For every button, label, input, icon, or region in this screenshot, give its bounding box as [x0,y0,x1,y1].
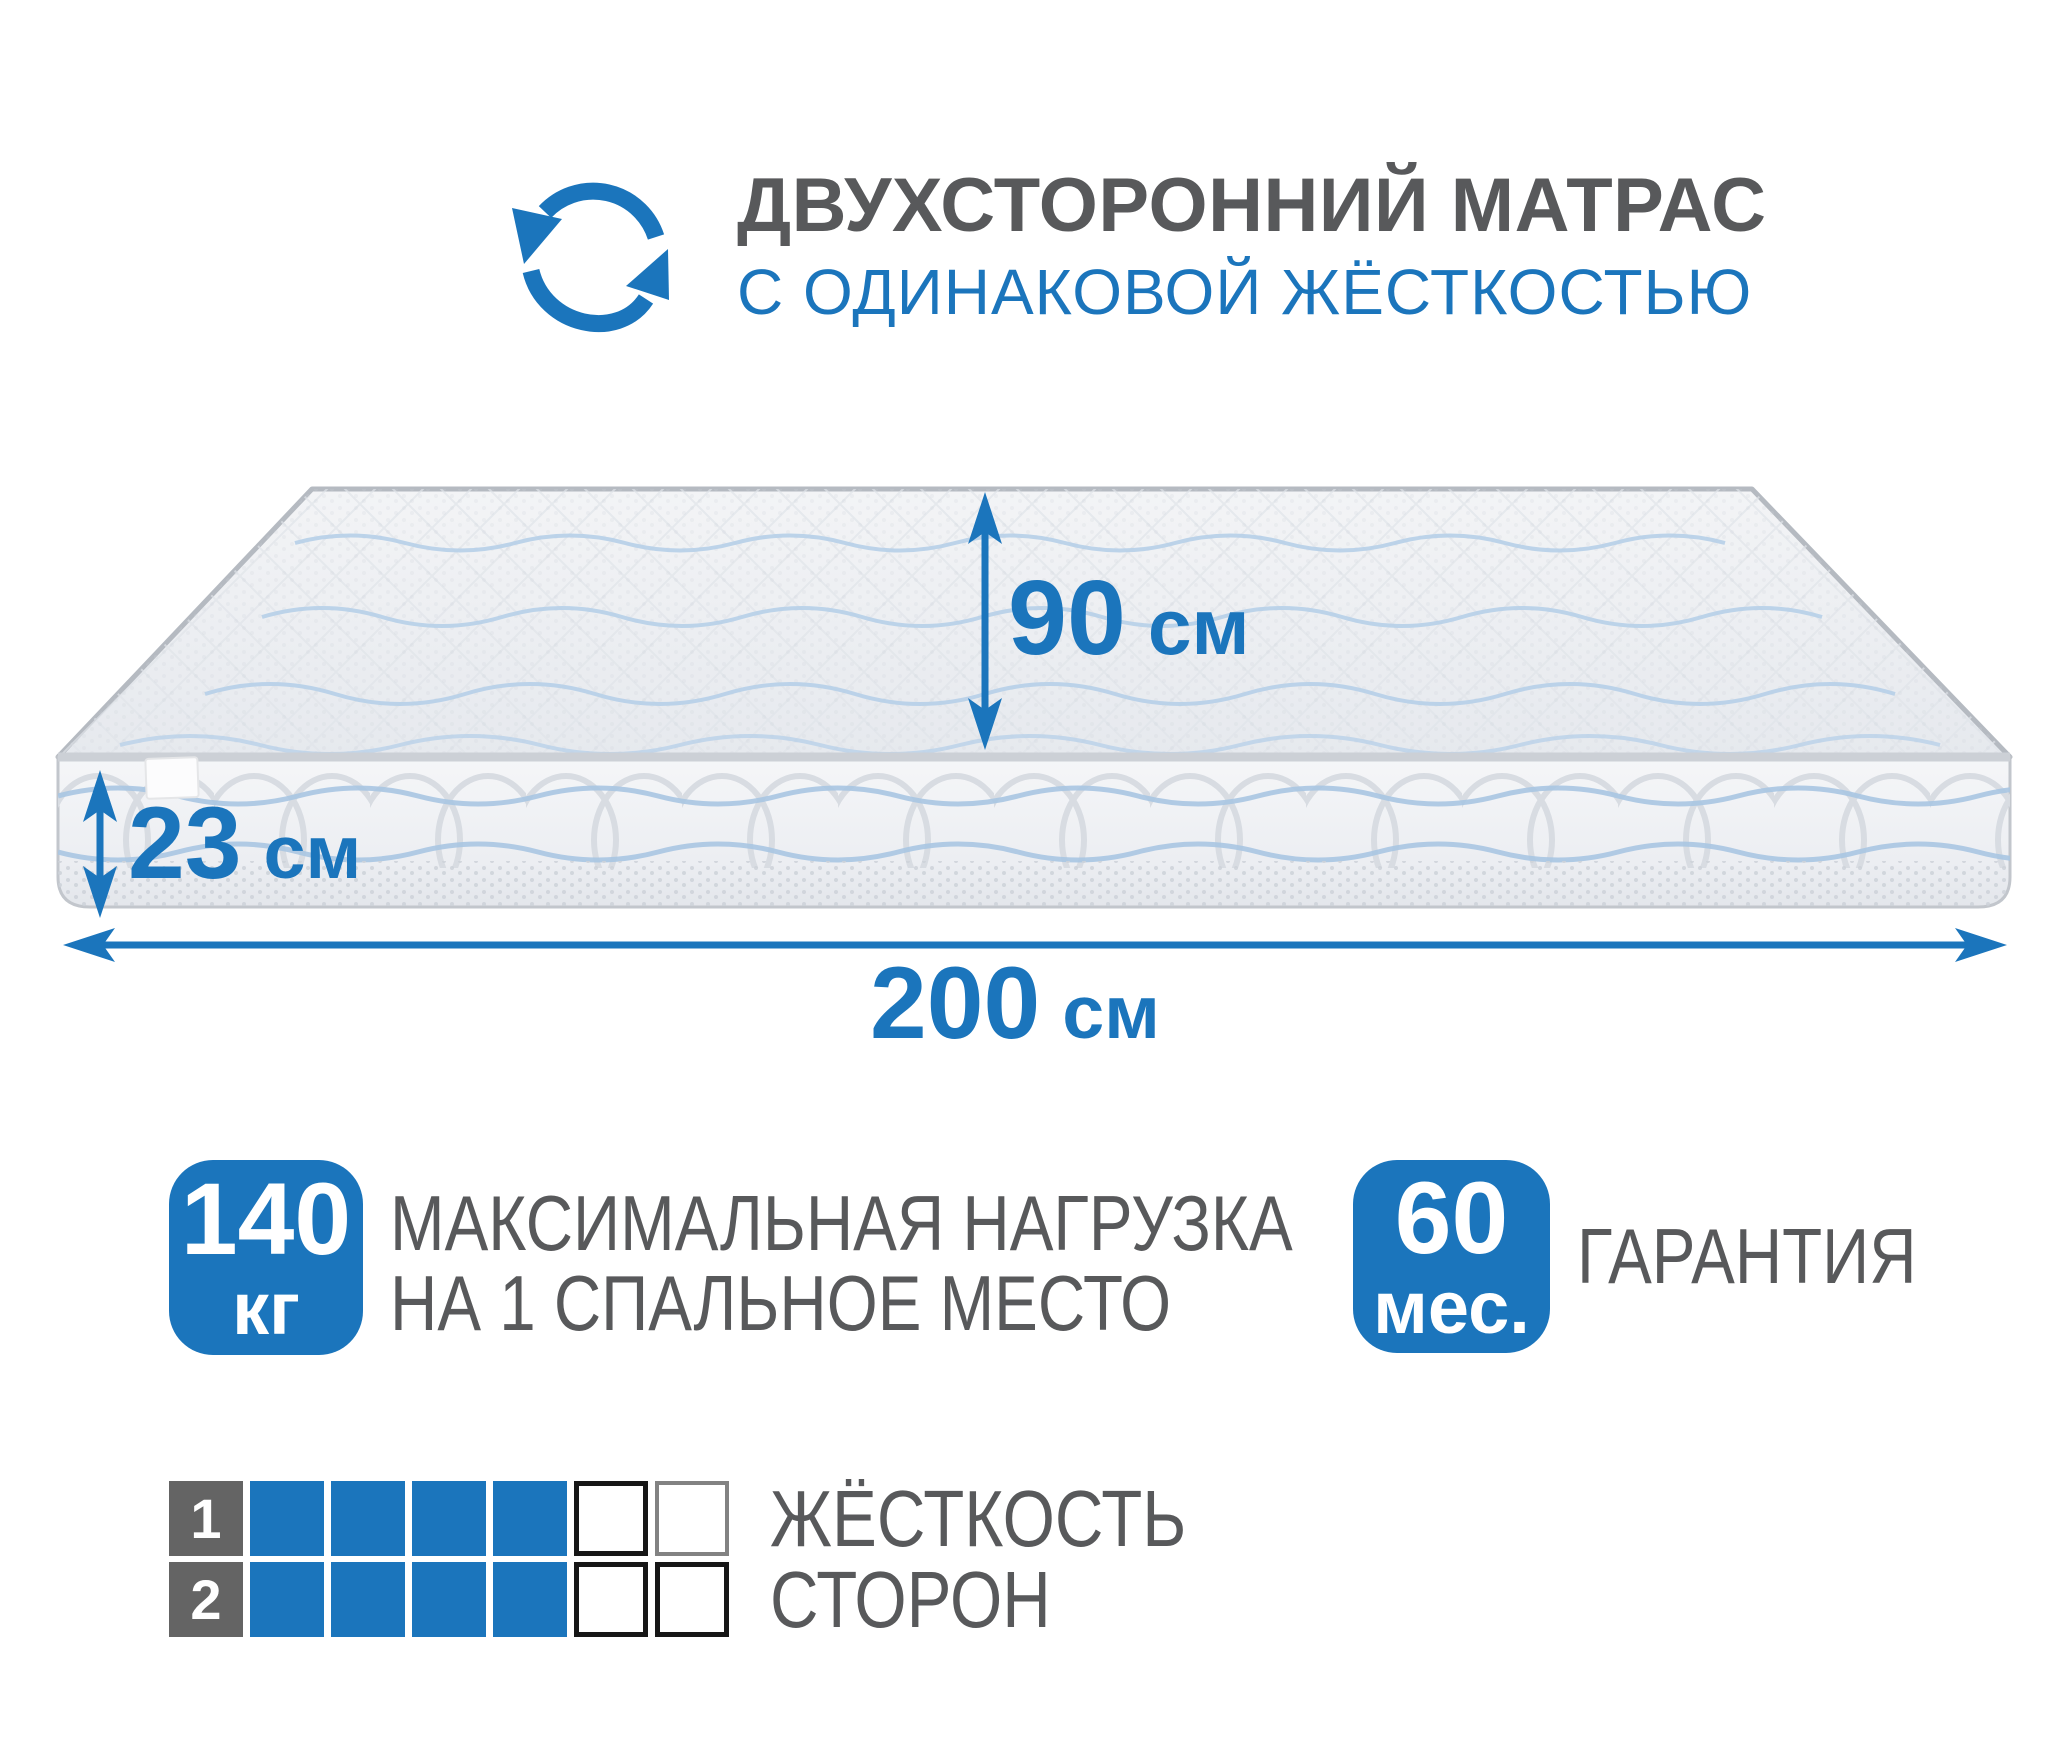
firmness-cell-empty [574,1481,648,1556]
max-load-label-line2: НА 1 СПАЛЬНОЕ МЕСТО [390,1263,1293,1343]
mattress-infographic: ДВУХСТОРОННИЙ МАТРАС С ОДИНАКОВОЙ ЖЁСТКО… [0,0,2048,1757]
dimension-thickness-value: 23 [128,786,241,900]
max-load-label: МАКСИМАЛЬНАЯ НАГРУЗКА НА 1 СПАЛЬНОЕ МЕСТ… [390,1183,1293,1343]
firmness-cell-empty [655,1481,729,1556]
firmness-cell-filled [493,1562,567,1637]
firmness-label-line1: ЖЁСТКОСТЬ [770,1481,1186,1556]
firmness-cell-filled [493,1481,567,1556]
max-load-value: 140 [181,1171,351,1268]
firmness-row-side2: 2 [169,1562,729,1637]
dimension-thickness-label: 23см [128,792,361,894]
page-subtitle: С ОДИНАКОВОЙ ЖЁСТКОСТЬЮ [737,260,1752,324]
firmness-cell-filled [250,1481,324,1556]
max-load-label-line1: МАКСИМАЛЬНАЯ НАГРУЗКА [390,1183,1293,1263]
dimension-length-unit: см [1062,970,1160,1054]
firmness-row-number: 1 [169,1481,243,1556]
firmness-cell-empty [655,1562,729,1637]
dimension-height-unit: см [1148,583,1250,671]
firmness-cell-filled [250,1562,324,1637]
dimension-length-value: 200 [870,946,1040,1060]
dimension-length-label: 200см [615,952,1415,1054]
firmness-cell-filled [412,1562,486,1637]
warranty-badge: 60 мес. [1353,1160,1550,1353]
warranty-label: ГАРАНТИЯ [1577,1216,1917,1296]
dimension-height-label: 90см [1008,565,1250,671]
firmness-cell-empty [574,1562,648,1637]
warranty-unit: мес. [1373,1273,1530,1343]
firmness-scale: 1 2 [169,1481,729,1643]
firmness-row-side1: 1 [169,1481,729,1556]
firmness-cell-filled [331,1562,405,1637]
firmness-cell-filled [331,1481,405,1556]
firmness-cell-filled [412,1481,486,1556]
warranty-value: 60 [1395,1170,1508,1267]
page-title: ДВУХСТОРОННИЙ МАТРАС [737,168,1767,244]
max-load-badge: 140 кг [169,1160,363,1355]
dimension-height-value: 90 [1008,559,1126,677]
firmness-row-number: 2 [169,1562,243,1637]
max-load-unit: кг [232,1274,300,1344]
dimension-thickness-unit: см [263,810,361,894]
firmness-scale-label: ЖЁСТКОСТЬ СТОРОН [770,1481,1186,1643]
firmness-label-line2: СТОРОН [770,1562,1186,1637]
rotate-arrows-icon [512,191,669,323]
